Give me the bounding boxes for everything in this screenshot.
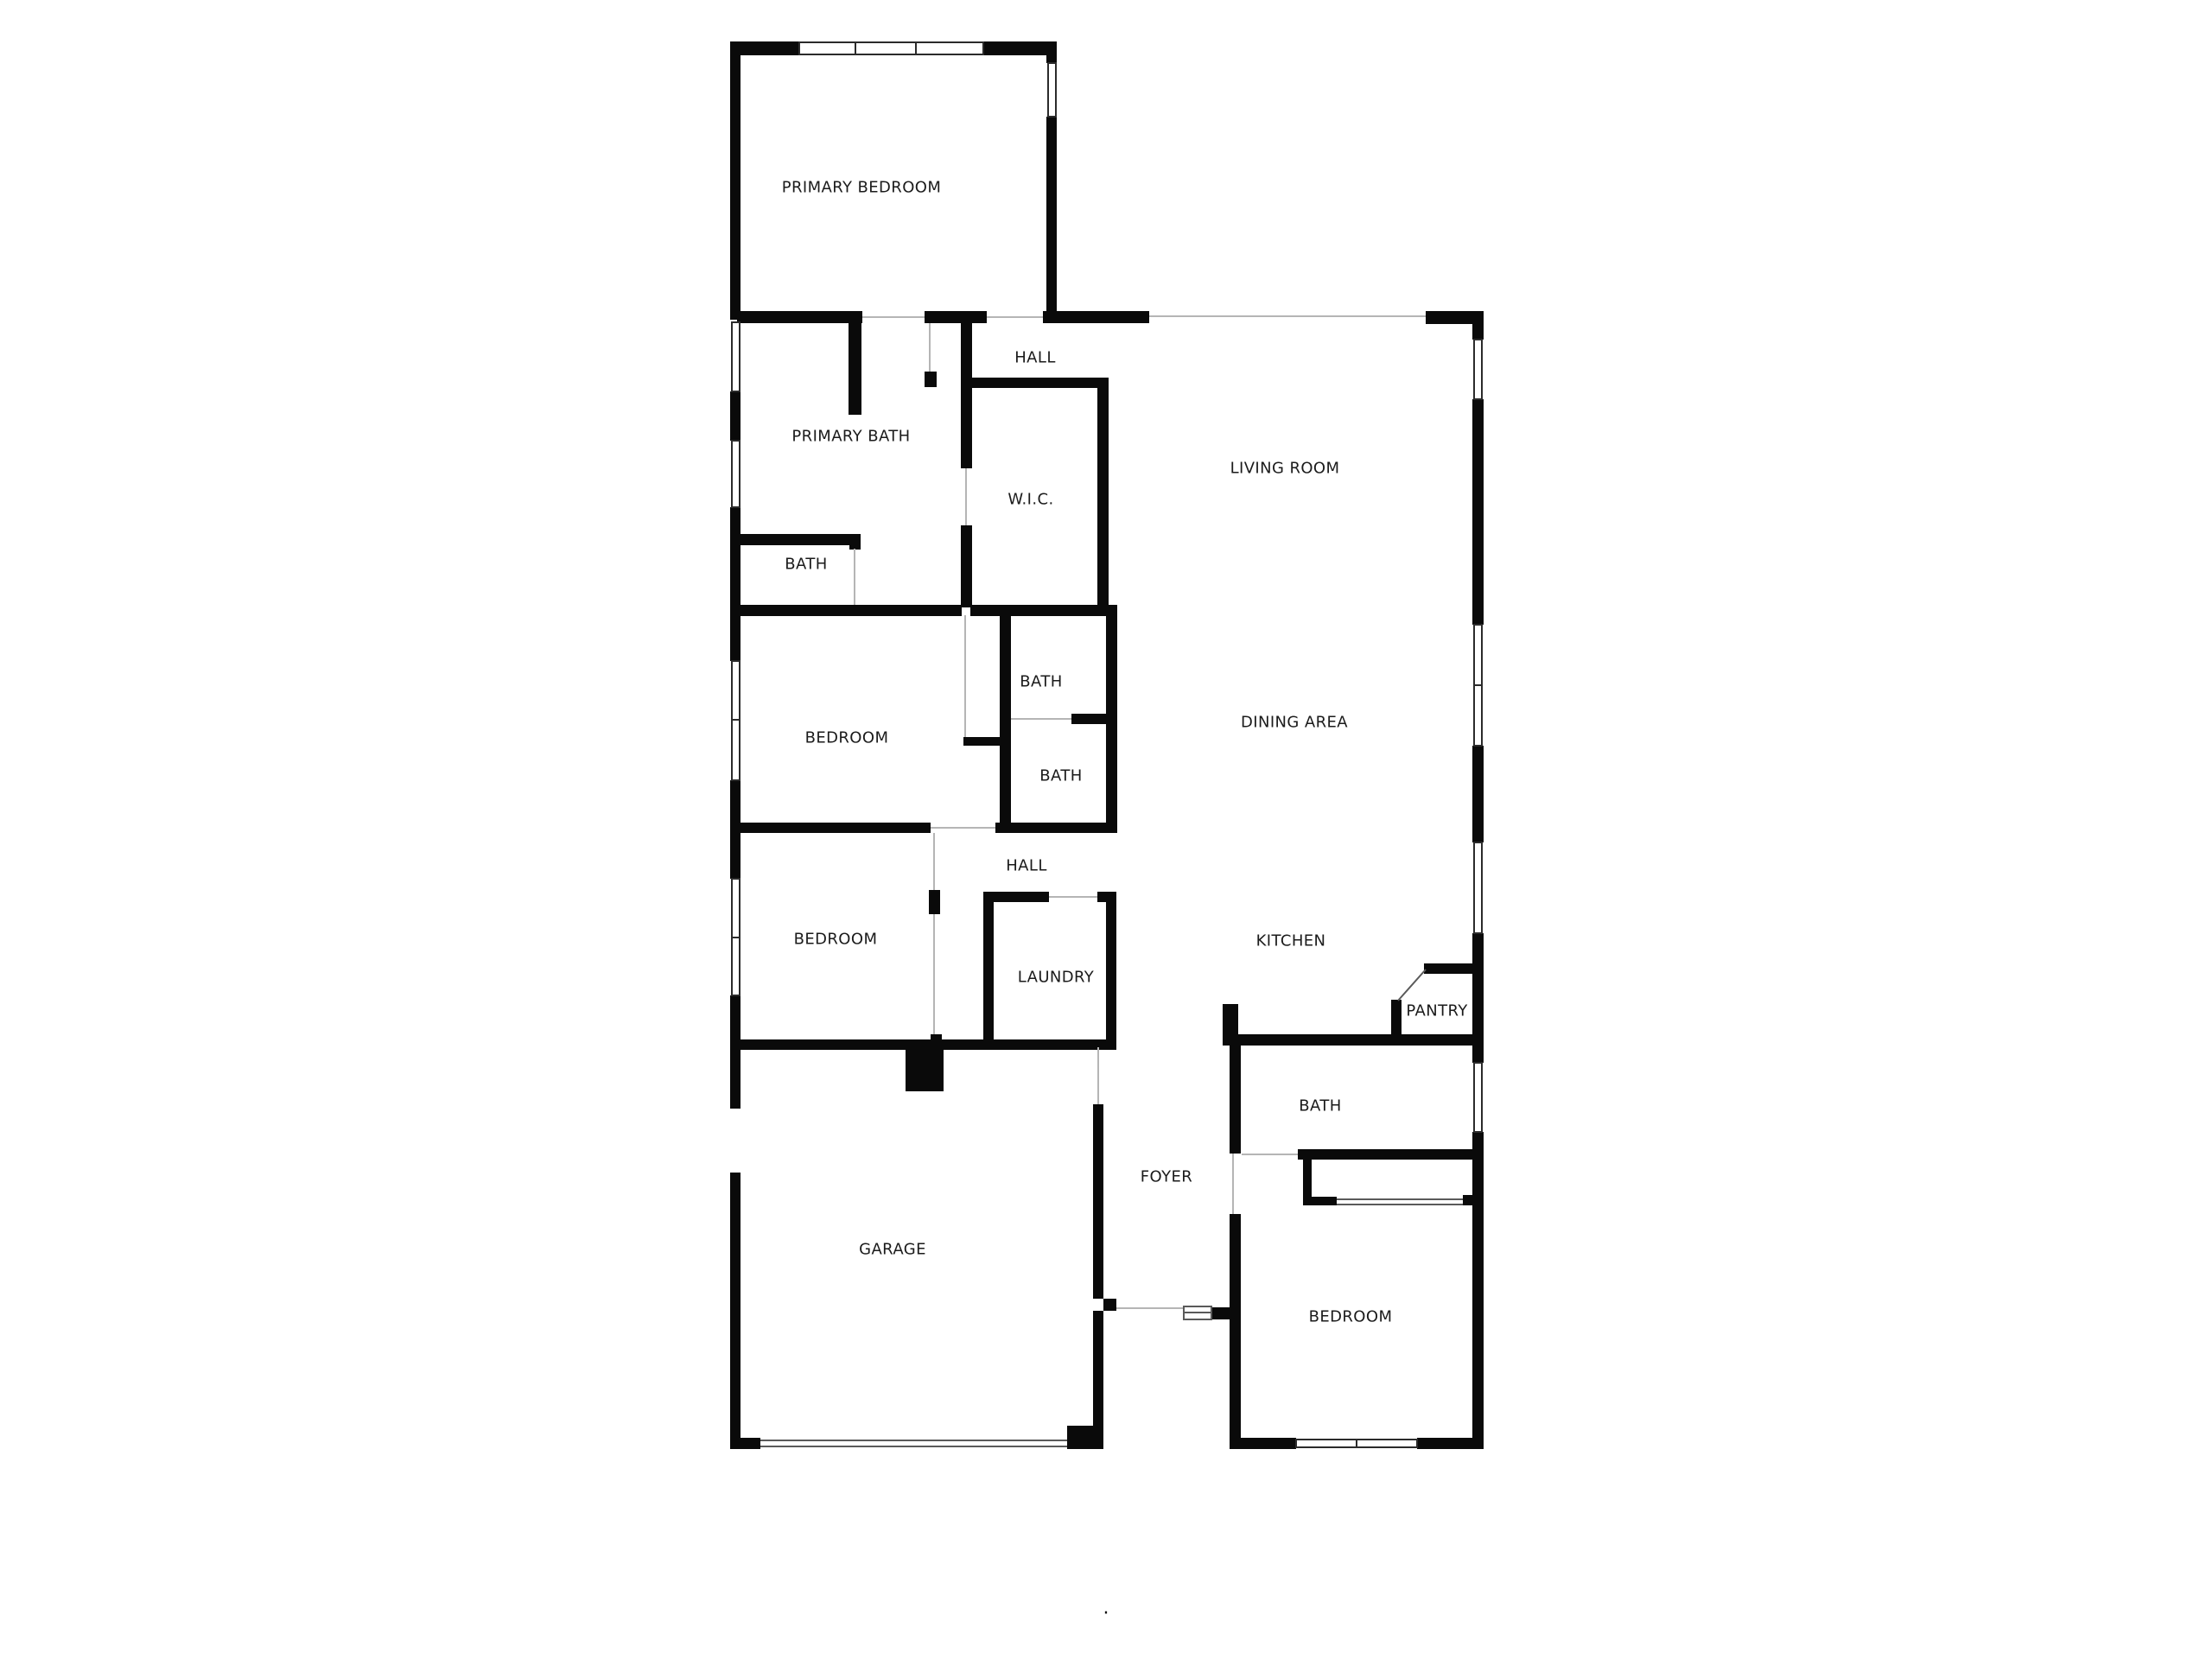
room-label-bath-primary: BATH bbox=[785, 556, 827, 574]
room-label-living-room: LIVING ROOM bbox=[1230, 460, 1340, 478]
room-label-foyer: FOYER bbox=[1141, 1168, 1192, 1186]
room-label-bedroom-right: BEDROOM bbox=[1309, 1308, 1393, 1326]
room-label-bath-mid-upper: BATH bbox=[1020, 673, 1062, 691]
room-label-dining-area: DINING AREA bbox=[1241, 714, 1348, 732]
room-label-primary-bath: PRIMARY BATH bbox=[791, 428, 910, 446]
room-label-primary-bedroom: PRIMARY BEDROOM bbox=[782, 179, 942, 197]
room-label-pantry: PANTRY bbox=[1406, 1002, 1467, 1020]
room-label-bedroom-mid: BEDROOM bbox=[805, 729, 889, 747]
room-label-wic: W.I.C. bbox=[1007, 491, 1053, 509]
floorplan-drawing bbox=[0, 0, 2212, 1659]
room-label-bedroom-lower: BEDROOM bbox=[794, 931, 878, 949]
room-label-laundry: LAUNDRY bbox=[1018, 969, 1094, 987]
room-label-garage: GARAGE bbox=[859, 1241, 926, 1259]
stray-dot: . bbox=[1103, 1598, 1109, 1619]
room-label-kitchen: KITCHEN bbox=[1256, 932, 1326, 950]
room-label-bath-mid-lower: BATH bbox=[1039, 767, 1082, 785]
floorplan-page: PRIMARY BEDROOM HALL PRIMARY BATH W.I.C.… bbox=[0, 0, 2212, 1659]
room-label-hall-lower: HALL bbox=[1006, 857, 1047, 875]
room-label-bath-right: BATH bbox=[1299, 1097, 1341, 1116]
room-label-hall-upper: HALL bbox=[1014, 349, 1056, 367]
